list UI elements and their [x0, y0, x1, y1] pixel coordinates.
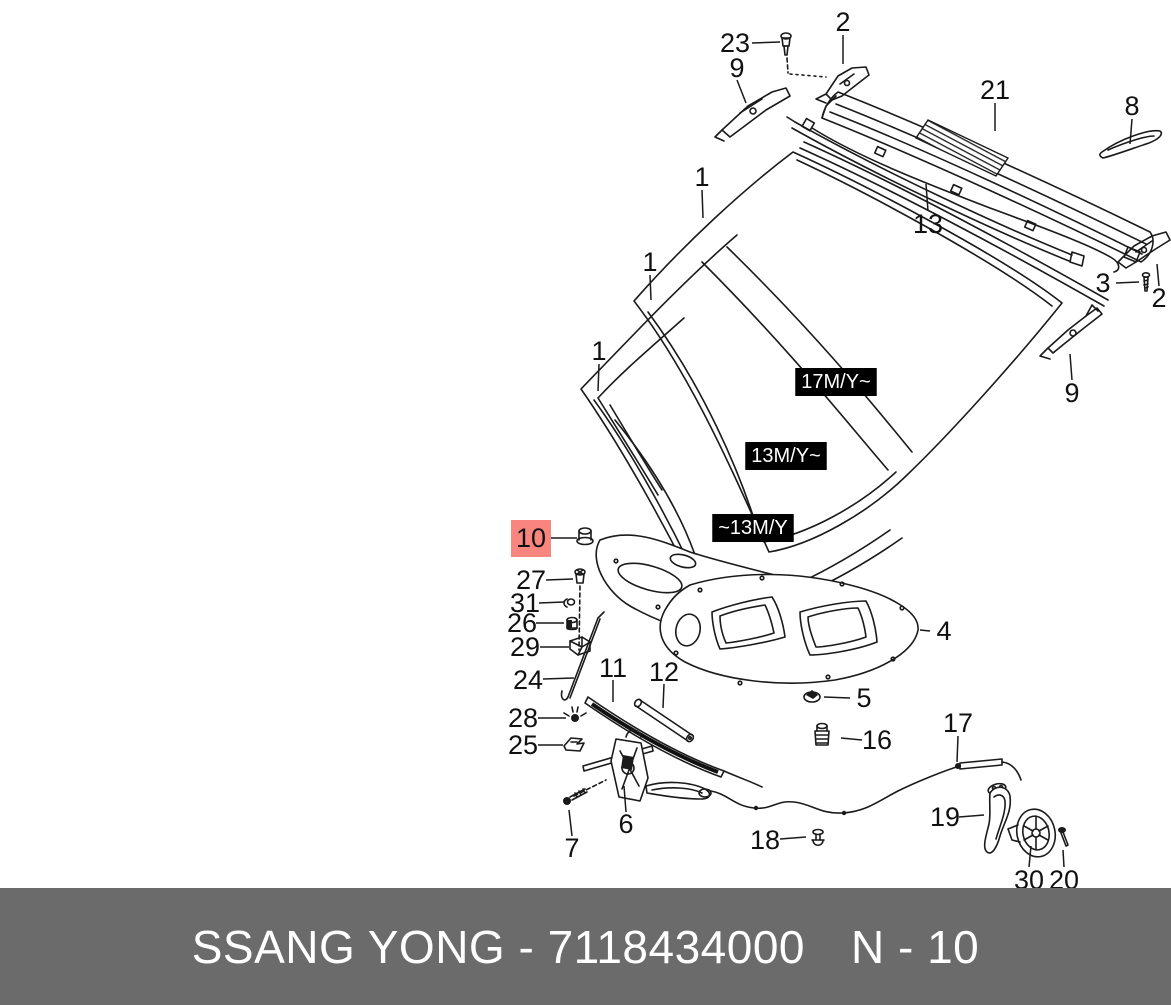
- callout-11: 11: [599, 653, 627, 702]
- callout-leader-line: [780, 837, 806, 839]
- callout-leader-line: [824, 697, 850, 698]
- callout-number-21[interactable]: 21: [980, 75, 1010, 105]
- callout-number-9[interactable]: 9: [1064, 378, 1079, 408]
- callout-number-29[interactable]: 29: [510, 632, 540, 662]
- callout-5: 5: [824, 683, 872, 713]
- callout-number-1[interactable]: 1: [694, 162, 709, 192]
- callout-2: 2: [835, 7, 850, 64]
- hinge-bracket-left: [715, 88, 790, 141]
- callout-number-17[interactable]: 17: [943, 708, 973, 738]
- release-cable: [711, 759, 1021, 815]
- callout-number-7[interactable]: 7: [564, 833, 579, 863]
- handle-bracket-30: [1008, 806, 1060, 861]
- clip-31: [564, 599, 575, 607]
- footer-brand-part-number: SSANG YONG - 7118434000: [192, 920, 805, 974]
- clip-25: [564, 738, 584, 751]
- model-year-tag-label: 17M/Y~: [801, 371, 870, 393]
- callout-1: 1: [591, 336, 606, 391]
- callout-number-16[interactable]: 16: [862, 725, 892, 755]
- callout-leader-line: [1116, 282, 1139, 283]
- bolt-7: [563, 789, 587, 805]
- callout-4: 4: [920, 616, 952, 646]
- cable-clip-18: [812, 830, 824, 846]
- bumper-16: [815, 724, 829, 746]
- callout-12: 12: [649, 657, 679, 708]
- model-year-tag: ~13M/Y: [712, 514, 793, 542]
- callout-leader-line: [737, 80, 746, 103]
- callout-leader-line: [752, 42, 780, 43]
- callout-number-8[interactable]: 8: [1124, 91, 1139, 121]
- hood-hinge-right: [1118, 232, 1170, 268]
- hood-parts-diagram: 17M/Y~13M/Y~~13M/Y2392218133211191027312…: [0, 0, 1171, 888]
- callout-leader-line: [1029, 846, 1031, 867]
- callout-number-24[interactable]: 24: [513, 665, 543, 695]
- callout-leader-line: [543, 678, 574, 679]
- release-handle: [985, 782, 1011, 853]
- callout-2: 2: [1151, 264, 1166, 313]
- callout-number-11[interactable]: 11: [599, 653, 627, 683]
- callout-16: 16: [841, 725, 892, 755]
- callout-number-2[interactable]: 2: [1151, 283, 1166, 313]
- hood-insulator-pad: [660, 574, 918, 684]
- callout-leader-line: [920, 630, 930, 631]
- model-year-tag: 13M/Y~: [745, 442, 826, 470]
- grommet-5: [804, 690, 820, 702]
- callout-number-12[interactable]: 12: [649, 657, 679, 687]
- callout-number-5[interactable]: 5: [856, 683, 871, 713]
- parts-diagram-page: 17M/Y~13M/Y~~13M/Y2392218133211191027312…: [0, 0, 1171, 1005]
- screw-20: [1058, 827, 1068, 846]
- callout-leader-line: [663, 684, 664, 708]
- callout-number-20[interactable]: 20: [1049, 865, 1079, 888]
- callout-number-28[interactable]: 28: [508, 703, 538, 733]
- callout-18: 18: [750, 825, 806, 855]
- callout-7: 7: [564, 810, 579, 863]
- callout-number-2[interactable]: 2: [835, 7, 850, 37]
- cowl-grille: [822, 92, 1153, 262]
- callout-17: 17: [943, 708, 973, 762]
- callout-21: 21: [980, 75, 1010, 131]
- callout-leader-line: [702, 190, 703, 218]
- callout-10: 10: [511, 520, 577, 557]
- hinge-bracket-right: [1040, 305, 1102, 359]
- callout-number-10[interactable]: 10: [516, 523, 546, 553]
- callout-20: 20: [1049, 850, 1079, 888]
- model-year-tag-label: 13M/Y~: [751, 445, 820, 467]
- callout-25: 25: [508, 730, 563, 760]
- model-year-tag: 17M/Y~: [795, 368, 876, 396]
- hood-panel-late: [634, 152, 1062, 552]
- callout-3: 3: [1095, 268, 1139, 298]
- footer-bar: SSANG YONG - 7118434000 N - 10: [0, 888, 1171, 1005]
- bumper-10: [577, 528, 593, 545]
- nut-28: [564, 707, 586, 722]
- cap-26: [567, 618, 577, 630]
- callout-30: 30: [1014, 846, 1044, 888]
- callout-19: 19: [930, 802, 984, 832]
- callout-9: 9: [1064, 354, 1079, 408]
- callout-number-25[interactable]: 25: [508, 730, 538, 760]
- callout-number-6[interactable]: 6: [618, 809, 633, 839]
- callout-number-4[interactable]: 4: [936, 616, 951, 646]
- callout-number-1[interactable]: 1: [642, 247, 657, 277]
- callout-28: 28: [508, 703, 566, 733]
- footer-page-ref: N - 10: [851, 920, 979, 974]
- callout-1: 1: [642, 247, 657, 300]
- callout-leader-line: [539, 602, 564, 603]
- callout-number-3[interactable]: 3: [1095, 268, 1110, 298]
- callout-number-19[interactable]: 19: [930, 802, 960, 832]
- callout-1: 1: [694, 162, 709, 218]
- screw-3: [1143, 273, 1150, 291]
- clip-23: [781, 33, 826, 77]
- callout-leader-line: [841, 738, 862, 740]
- callout-number-1[interactable]: 1: [591, 336, 606, 366]
- callout-leader-line: [959, 815, 984, 817]
- callout-leader-line: [598, 364, 599, 391]
- callout-leader-line: [546, 579, 573, 580]
- callout-leader-line: [1070, 354, 1072, 380]
- callout-leader-line: [957, 736, 958, 762]
- callout-number-13[interactable]: 13: [913, 209, 943, 239]
- callout-29: 29: [510, 632, 569, 662]
- hood-hinge-left: [816, 67, 869, 103]
- callout-leader-line: [926, 184, 928, 211]
- callout-24: 24: [513, 665, 574, 695]
- callout-leader-line: [650, 275, 651, 300]
- seal-strip-11: [585, 697, 762, 787]
- model-year-tag-label: ~13M/Y: [718, 517, 787, 539]
- callout-9: 9: [729, 53, 746, 103]
- callout-number-18[interactable]: 18: [750, 825, 780, 855]
- callout-number-30[interactable]: 30: [1014, 865, 1044, 888]
- callout-number-9[interactable]: 9: [729, 53, 744, 83]
